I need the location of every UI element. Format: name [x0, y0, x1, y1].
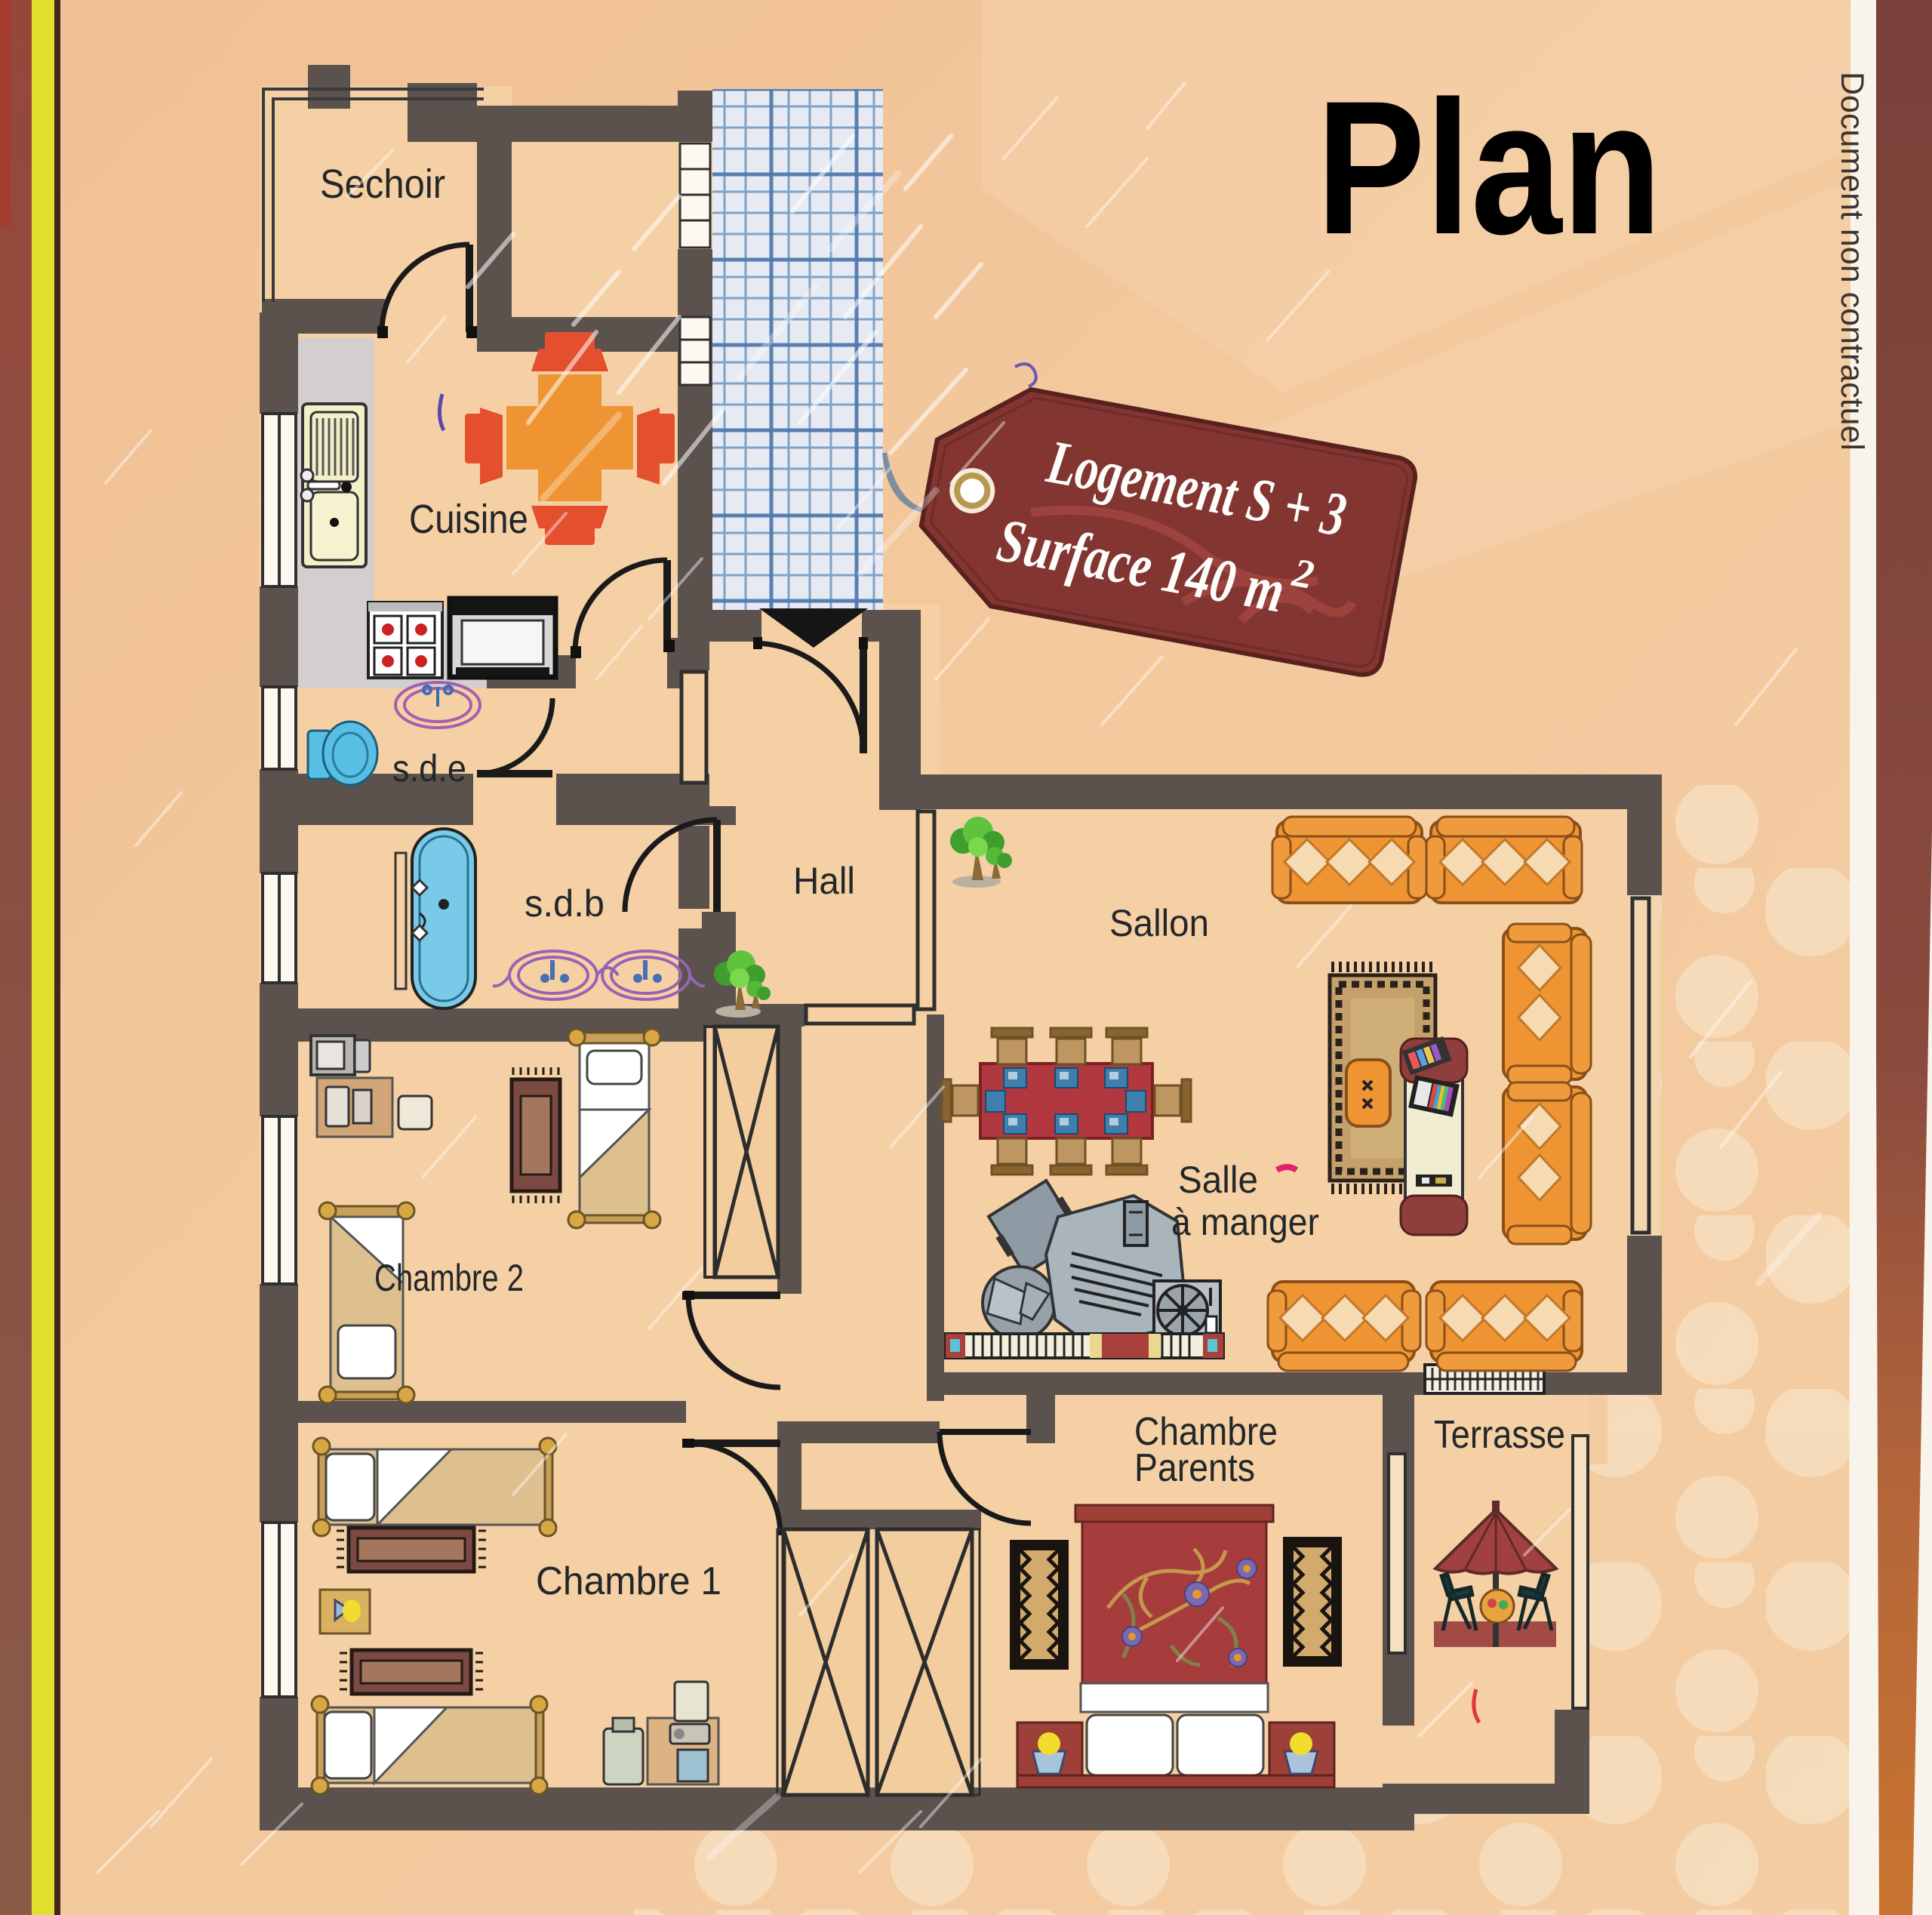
svg-text:s.d.e: s.d.e: [392, 747, 466, 790]
svg-text:Document non contractuel: Document non contractuel: [1834, 72, 1870, 451]
svg-text:Hall: Hall: [793, 860, 855, 902]
svg-text:Sechoir: Sechoir: [320, 162, 445, 207]
svg-text:s.d.b: s.d.b: [525, 882, 605, 925]
svg-text:Parents: Parents: [1134, 1446, 1255, 1490]
svg-text:à manger: à manger: [1171, 1201, 1319, 1243]
svg-text:Terrasse: Terrasse: [1434, 1413, 1565, 1457]
svg-text:Plan: Plan: [1316, 62, 1662, 274]
svg-text:Chambre 1: Chambre 1: [536, 1559, 721, 1603]
svg-text:Cuisine: Cuisine: [409, 497, 528, 542]
svg-text:Sallon: Sallon: [1109, 902, 1209, 944]
svg-text:Chambre 2: Chambre 2: [374, 1257, 524, 1299]
svg-text:Salle: Salle: [1178, 1159, 1258, 1201]
